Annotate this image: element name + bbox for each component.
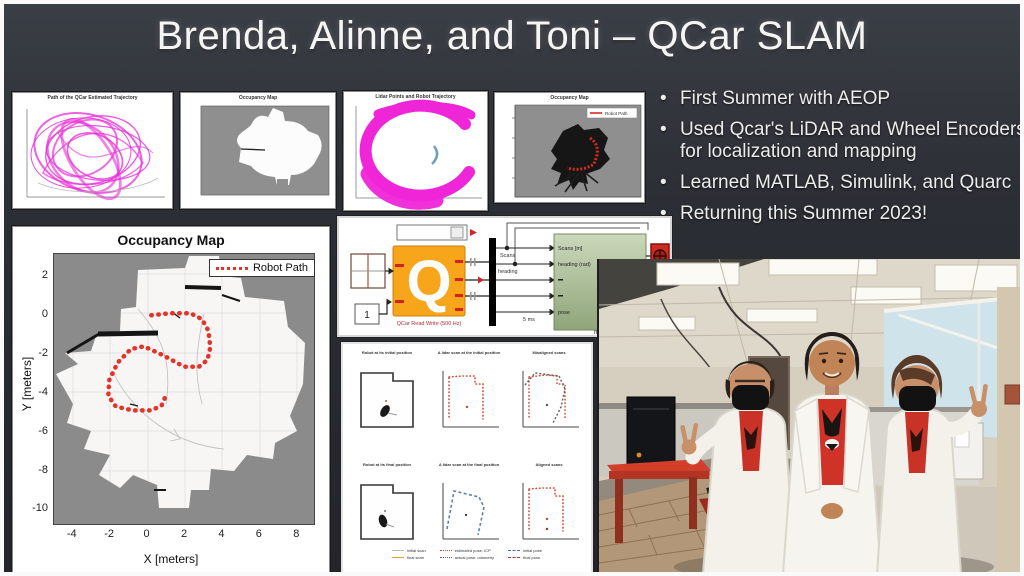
x-tick-label: -4: [61, 528, 83, 540]
subplot-title: Misaligned scans: [509, 350, 589, 355]
robot-path-legend-swatch: [216, 267, 248, 270]
subplot-room-initial: [353, 358, 421, 444]
thumbnail-lidar-ring: Lidar Points and Robot Trajectory: [343, 91, 488, 211]
y-tick-label: 0: [22, 308, 48, 320]
bullet-list: First Summer with AEOPUsed Qcar's LiDAR …: [654, 88, 1024, 234]
legend-label: initial scan: [407, 548, 426, 553]
thumbnail-occupancy-map-2: Occupancy Map Robot Path: [494, 92, 645, 203]
qcar-block: Q QCar Read Write (500 Hz): [393, 246, 465, 327]
thumbnail-occupancy-map-1: Occupancy Map: [180, 92, 336, 209]
legend-item: estimated pose: ICP: [440, 548, 494, 553]
legend-swatch: [440, 557, 452, 558]
legend-item: initial pose: [508, 548, 542, 553]
x-tick-label: 6: [248, 528, 270, 540]
bullet-item: First Summer with AEOP: [654, 88, 1024, 110]
legend-label: estimated pose: ICP: [455, 548, 491, 553]
thumbnail-legend-label: Robot Path: [605, 111, 628, 116]
wire-label-scans: Scans: [500, 253, 516, 259]
subplot-scan-initial: [433, 358, 505, 444]
constant-block: 1: [355, 304, 379, 324]
qcar-logo: Q: [406, 249, 451, 314]
thumbnail-title: Lidar Points and Robot Trajectory: [344, 94, 487, 100]
map-plot-area: [53, 253, 315, 525]
subplot-misaligned-scans: [513, 358, 585, 444]
legend-label: initial pose: [523, 548, 542, 553]
x-tick-label: 4: [210, 528, 232, 540]
thumbnail-title: Path of the QCar Estimated Trajectory: [13, 95, 172, 101]
x-tick-label: -2: [98, 528, 120, 540]
fire-alarm: [1005, 385, 1020, 404]
y-tick-label: -6: [22, 425, 48, 437]
lidar-ring-plot: [344, 92, 489, 212]
wire-label-rate: 5 ms: [523, 317, 535, 323]
occupancy-map-thumbnail: [181, 93, 337, 210]
x-axis-label: X [meters]: [13, 552, 329, 566]
y-tick-label: -10: [22, 502, 48, 514]
legend-item: initial scan: [392, 548, 426, 553]
legend-column: estimated pose: ICPactual pose: odometry: [440, 548, 494, 560]
subplot-scan-final: [433, 470, 505, 556]
subplot-title: Aligned scans: [509, 462, 589, 467]
wall-column: [997, 287, 1024, 574]
port-label-scans: Scans [m]: [558, 246, 583, 252]
bullet-item: Used Qcar's LiDAR and Wheel Encoders for…: [654, 119, 1024, 163]
mux-block: [489, 238, 496, 326]
legend-swatch: [392, 550, 404, 551]
free-space-blob: [56, 256, 305, 508]
x-tick-label: 2: [173, 528, 195, 540]
wire-label-heading: heading: [498, 269, 518, 275]
legend-swatch: [508, 557, 520, 558]
pc-tower: [627, 397, 675, 465]
slider-block: [397, 225, 477, 240]
legend-swatch: [440, 550, 452, 551]
port-label-heading: heading (rad): [558, 262, 591, 268]
port-label-pose: pose: [558, 310, 570, 316]
y-tick-label: -4: [22, 386, 48, 398]
occupancy-map-thumbnail-2: Robot Path: [495, 93, 646, 204]
y-tick-label: -2: [22, 347, 48, 359]
grid-block: [351, 254, 385, 288]
page-title: Brenda, Alinne, and Toni – QCar SLAM: [4, 14, 1020, 59]
chart-title: Occupancy Map: [13, 232, 329, 248]
occupancy-map-panel: Occupancy Map Robot Path: [12, 226, 330, 574]
legend-column: initial scanfinal scan: [392, 548, 426, 560]
legend-column: initial posefinal pose: [508, 548, 542, 560]
subplot-title: Robot at its initial position: [347, 350, 427, 355]
bullet-item: Learned MATLAB, Simulink, and Quarc: [654, 172, 1024, 194]
subplot-aligned-scans: [513, 470, 585, 556]
team-photo-illustration: [599, 259, 1024, 574]
x-tick-label: 8: [285, 528, 307, 540]
bullet-item: Returning this Summer 2023!: [654, 203, 1024, 225]
qcar-to-mux-wires: [465, 258, 489, 300]
legend-label: final scan: [407, 555, 424, 560]
y-tick-label: 2: [22, 269, 48, 281]
legend-swatch: [392, 557, 404, 558]
legend-label: actual pose: odometry: [455, 555, 494, 560]
thumbnail-trajectory-scribble: Path of the QCar Estimated Trajectory: [12, 92, 173, 209]
subplot-legend: initial scanfinal scanestimated pose: IC…: [343, 548, 591, 560]
constant-value: 1: [364, 310, 370, 321]
presentation-slide: Brenda, Alinne, and Toni – QCar SLAM Pat…: [0, 0, 1024, 576]
x-tick-label: 0: [136, 528, 158, 540]
robot-path-legend-label: Robot Path: [253, 262, 308, 274]
occupancy-map-svg: [54, 254, 316, 526]
chart-legend: Robot Path: [209, 259, 315, 277]
legend-swatch: [508, 550, 520, 551]
y-tick-label: -8: [22, 464, 48, 476]
team-photo: [597, 259, 1024, 574]
scribble-trajectory-plot: [13, 93, 174, 210]
thumbnail-title: Occupancy Map: [495, 95, 644, 101]
qcar-caption: QCar Read Write (500 Hz): [397, 321, 462, 327]
subplot-title: A lidar scan at the final position: [429, 462, 509, 467]
subplot-title: A lidar scan at the initial position: [429, 350, 509, 355]
legend-label: final pose: [523, 555, 540, 560]
legend-item: final scan: [392, 555, 426, 560]
legend-item: final pose: [508, 555, 542, 560]
subplot-title: Robot at its final position: [347, 462, 427, 467]
legend-item: actual pose: odometry: [440, 555, 494, 560]
subplot-room-final: [353, 470, 421, 556]
slam-subplots-panel: Robot at its initial position A lidar sc…: [341, 342, 593, 576]
thumbnail-title: Occupancy Map: [181, 95, 335, 101]
